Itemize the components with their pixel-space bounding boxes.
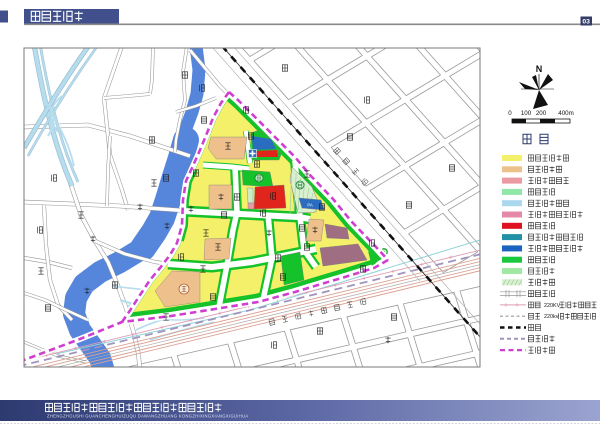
svg-text:0: 0 [508,110,512,117]
svg-text:03: 03 [582,19,590,26]
svg-text:PA: PA [307,203,312,208]
svg-text:N: N [536,64,543,74]
svg-text:220kv: 220kv [544,314,559,320]
svg-text:200: 200 [536,110,547,117]
svg-text:100: 100 [521,110,532,117]
svg-text:220KV: 220KV [544,303,561,309]
svg-text:ZHENGZHOUSHI GUANCHENGHUIZUQU: ZHENGZHOUSHI GUANCHENGHUIZUQU DAWANGZHUA… [47,414,248,419]
svg-text:400m: 400m [558,110,573,117]
